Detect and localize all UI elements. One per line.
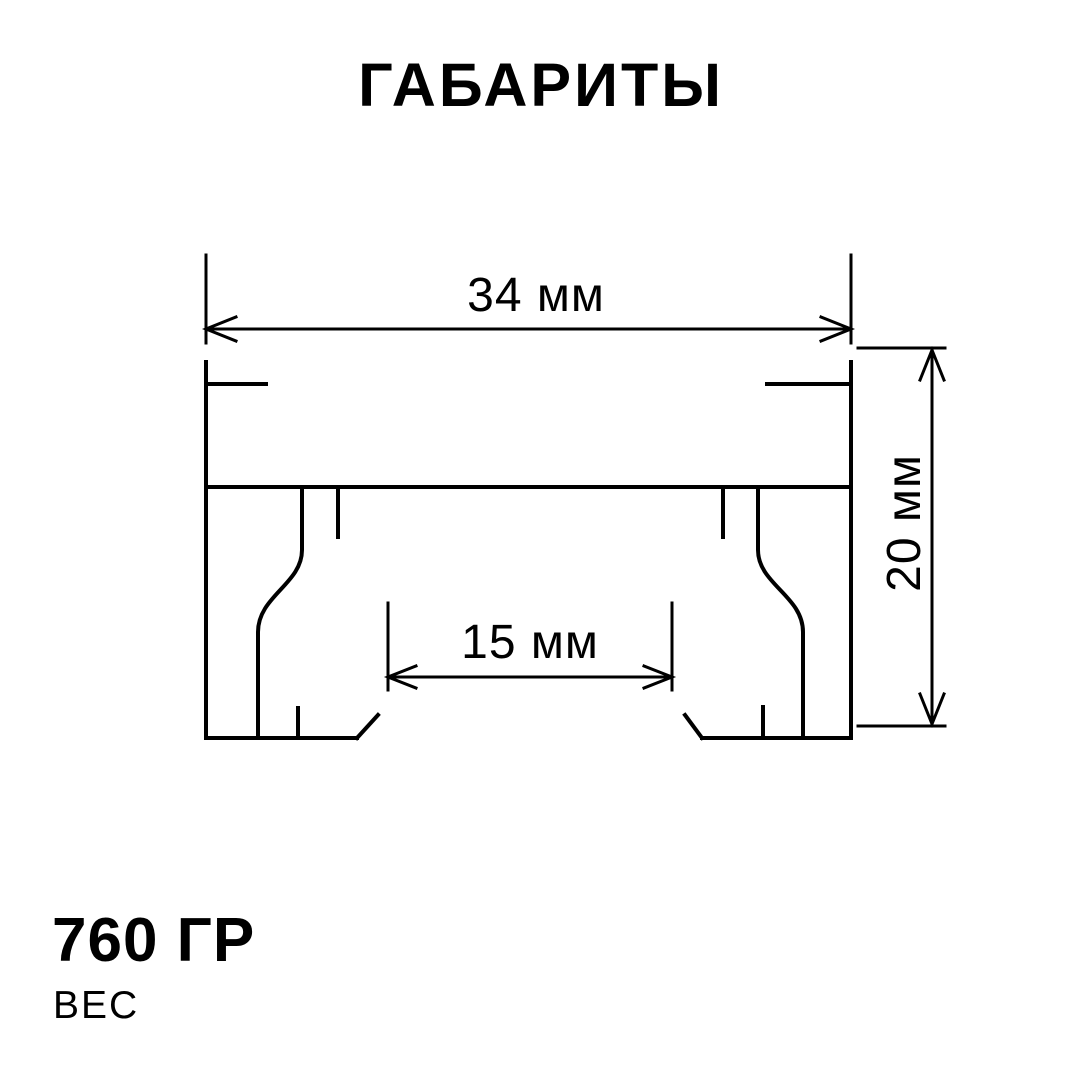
infographic-page: ГАБАРИТЫ bbox=[0, 0, 1080, 1080]
page-title: ГАБАРИТЫ bbox=[358, 51, 724, 119]
weight-label: ВЕС bbox=[53, 984, 139, 1027]
inner-width-label: 15 мм bbox=[461, 616, 599, 669]
height-label: 20 мм bbox=[878, 454, 931, 592]
dimensions-diagram: ГАБАРИТЫ bbox=[0, 0, 1080, 1080]
overall-width-label: 34 мм bbox=[467, 269, 605, 322]
weight-value: 760 ГР bbox=[52, 906, 255, 975]
